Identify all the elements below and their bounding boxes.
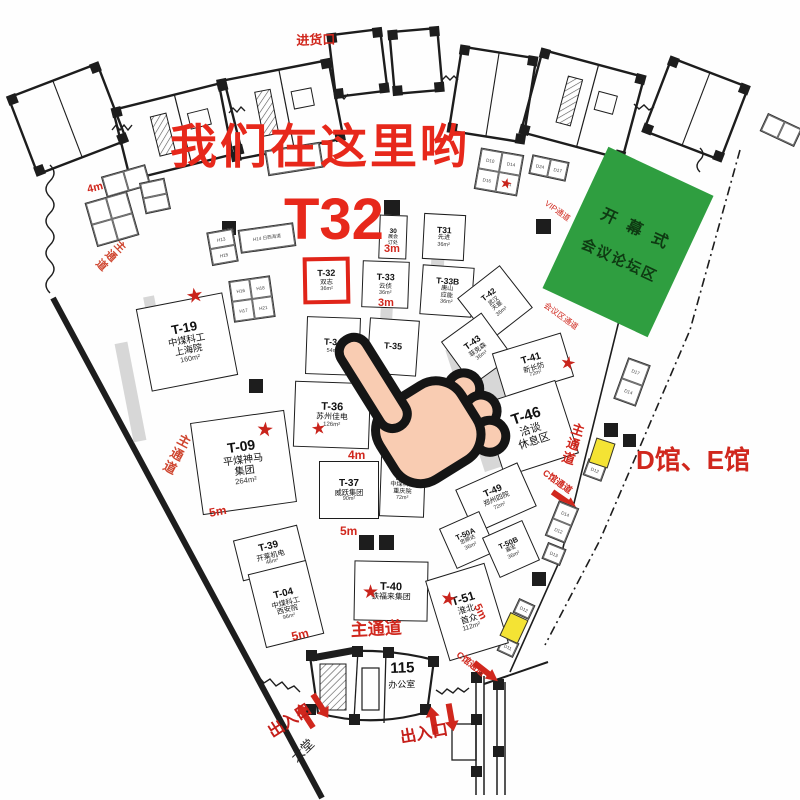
map-label: 5m [340, 524, 357, 538]
floor-plan-map: 我们在这里哟 T32 开幕式 会议论坛区 H13H15H14 日西海道H16H1… [0, 0, 800, 800]
star-icon: ★ [184, 285, 205, 308]
booth-t-38: T-38中煤科工重庆院72m² [379, 456, 426, 518]
booth-area: 48m² [265, 558, 279, 567]
booth-t-34: T-3454m² [305, 316, 361, 376]
booth-t-35: T-35 [366, 317, 420, 376]
map-label: 进货口 [296, 29, 336, 49]
mini-booth-cluster: H13H15 [206, 228, 238, 266]
map-label: 主通道 [350, 613, 402, 641]
booth-area: 96m² [282, 613, 296, 622]
star-icon: ★ [310, 419, 327, 438]
star-icon: ★ [362, 583, 379, 602]
booth-t31: T31先进36m² [422, 213, 466, 261]
booth-id: T-35 [384, 341, 403, 352]
map-label: 办公室 [388, 677, 415, 691]
booth-area: 264m² [235, 475, 258, 486]
map-label: 5m [208, 503, 228, 520]
booth-t-09: T-09平煤神马集团264m² [190, 410, 297, 515]
booth-name: 威跃集团 [335, 489, 364, 497]
booth-area: 72m² [396, 495, 409, 501]
mini-booth-cluster: H16H18H17H21 [228, 275, 275, 322]
booth-id: T-33 [377, 273, 395, 284]
mini-booth-cell: H17 [232, 299, 255, 322]
booth-area: 90m² [343, 496, 356, 502]
booth-area: 36m² [379, 290, 392, 296]
booth-id: T-32 [317, 269, 335, 279]
star-icon: ★ [559, 353, 578, 374]
headline-we-are-here: 我们在这里哟 [170, 108, 470, 177]
booth-area: 36m² [437, 242, 450, 249]
star-icon: ★ [255, 419, 275, 440]
booth-t-36: T-36苏州佳电126m² [293, 381, 371, 450]
booth-area: 36m² [440, 299, 453, 306]
booth-t-32: T-32双志36m² [303, 257, 351, 305]
booth-t-37: T-37威跃集团90m² [319, 461, 379, 519]
headline-booth-code: T32 [284, 186, 376, 253]
map-label: 4m [348, 448, 365, 462]
map-label: 3m [384, 243, 400, 255]
map-label: 115 [390, 659, 415, 677]
mini-booth-cell: D17 [547, 159, 568, 180]
mini-booth-cell: H15 [210, 245, 237, 265]
booth-area: 160m² [180, 353, 201, 365]
map-label: D馆、E馆 [636, 440, 750, 477]
mini-booth-cell: H21 [252, 296, 275, 319]
booth-id: T-34 [324, 338, 342, 349]
booth-id: T-37 [339, 478, 359, 489]
booth-area: 36m² [320, 286, 333, 292]
star-icon: ★ [438, 589, 458, 611]
map-label: 3m [378, 297, 394, 309]
booth-area: 54m² [326, 348, 339, 354]
